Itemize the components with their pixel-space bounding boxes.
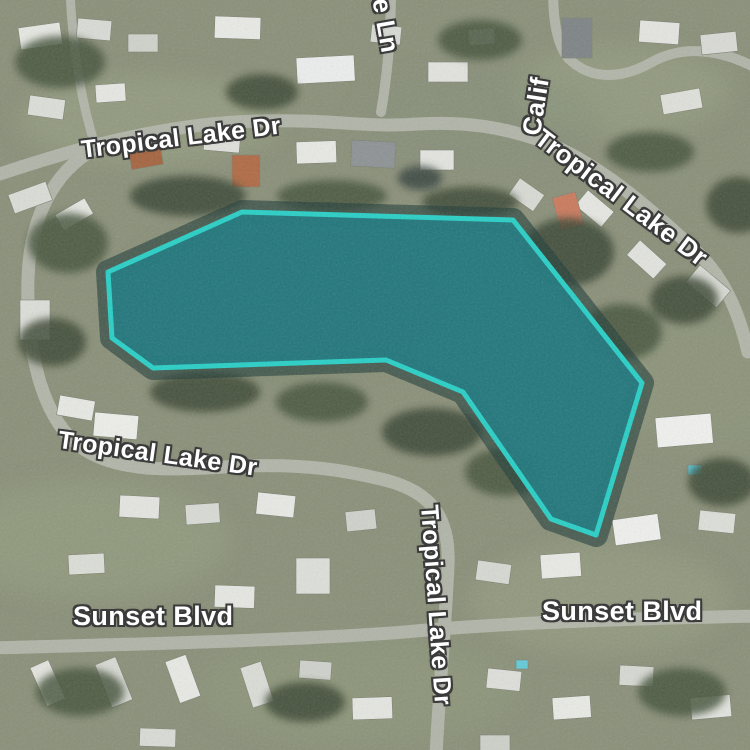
aerial-imagery <box>0 0 750 750</box>
satellite-map[interactable]: Tropical Lake Dr Tropical Lake Dr Tropic… <box>0 0 750 750</box>
photo-grain <box>0 0 750 750</box>
